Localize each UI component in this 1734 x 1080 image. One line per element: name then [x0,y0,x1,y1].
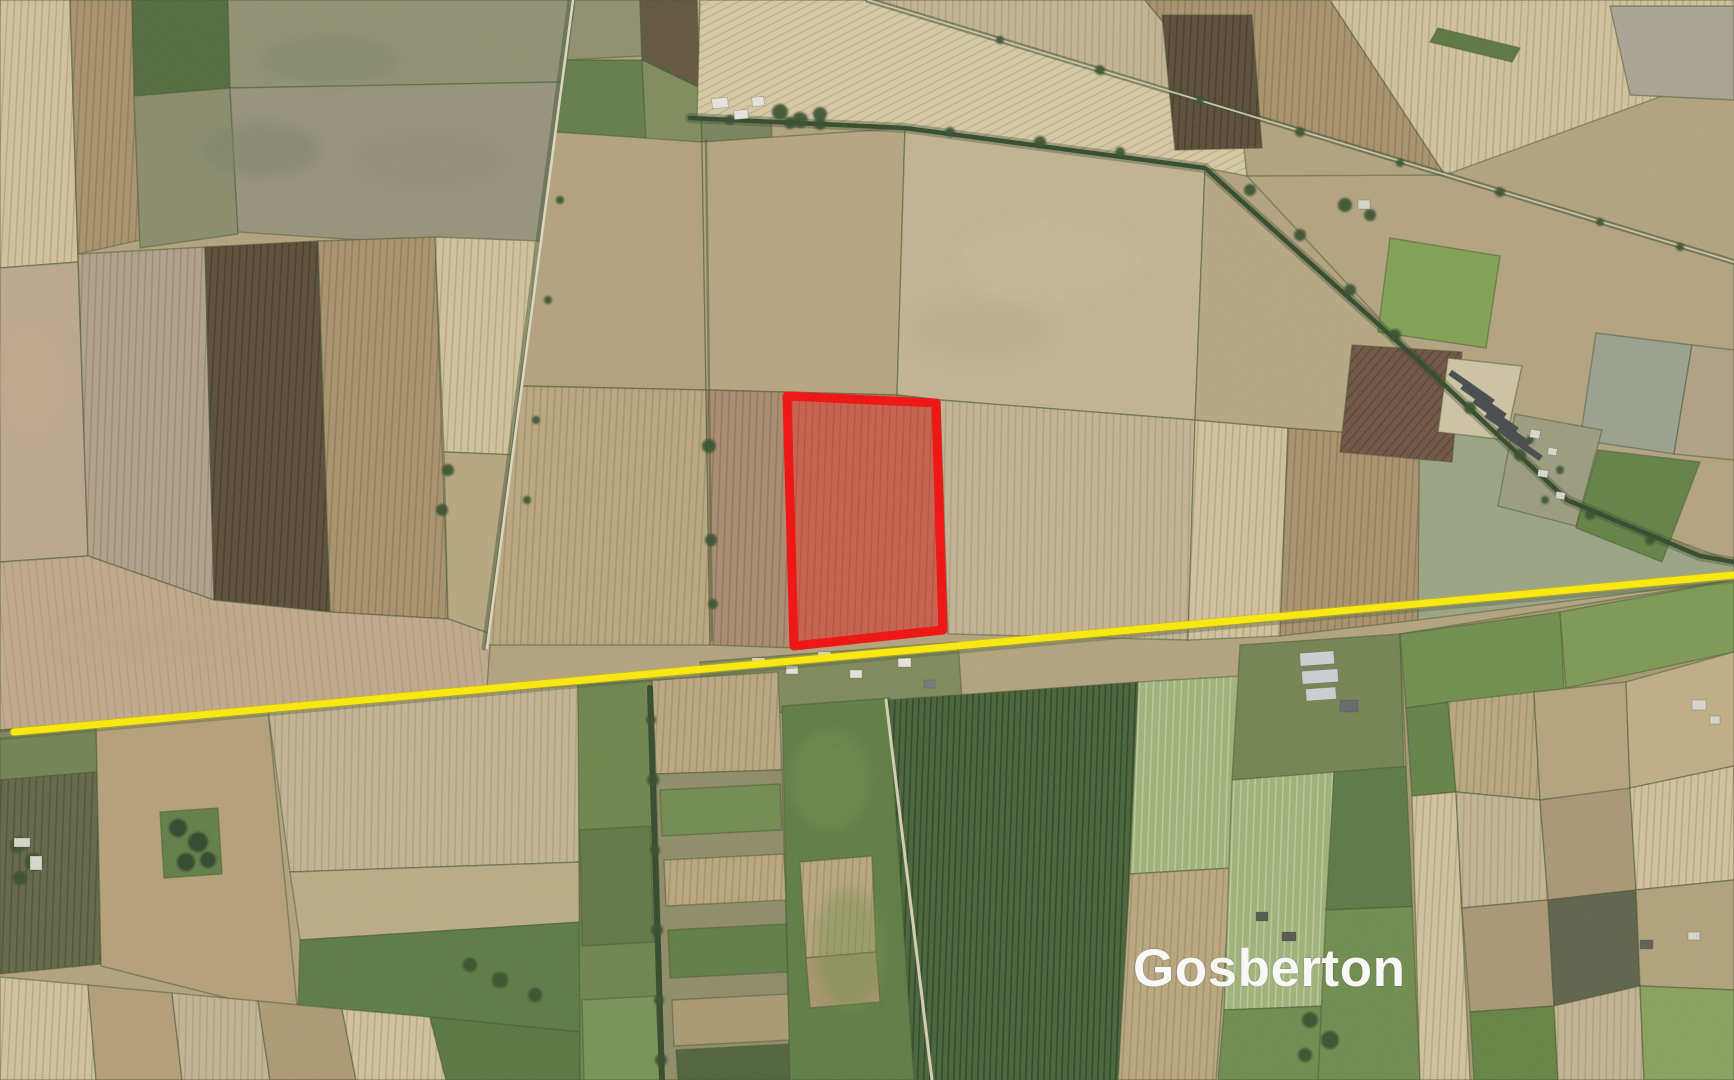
map-canvas[interactable]: Gosberton [0,0,1734,1080]
satellite-map[interactable]: Gosberton [0,0,1734,1080]
texture-overlay [0,0,1734,1080]
